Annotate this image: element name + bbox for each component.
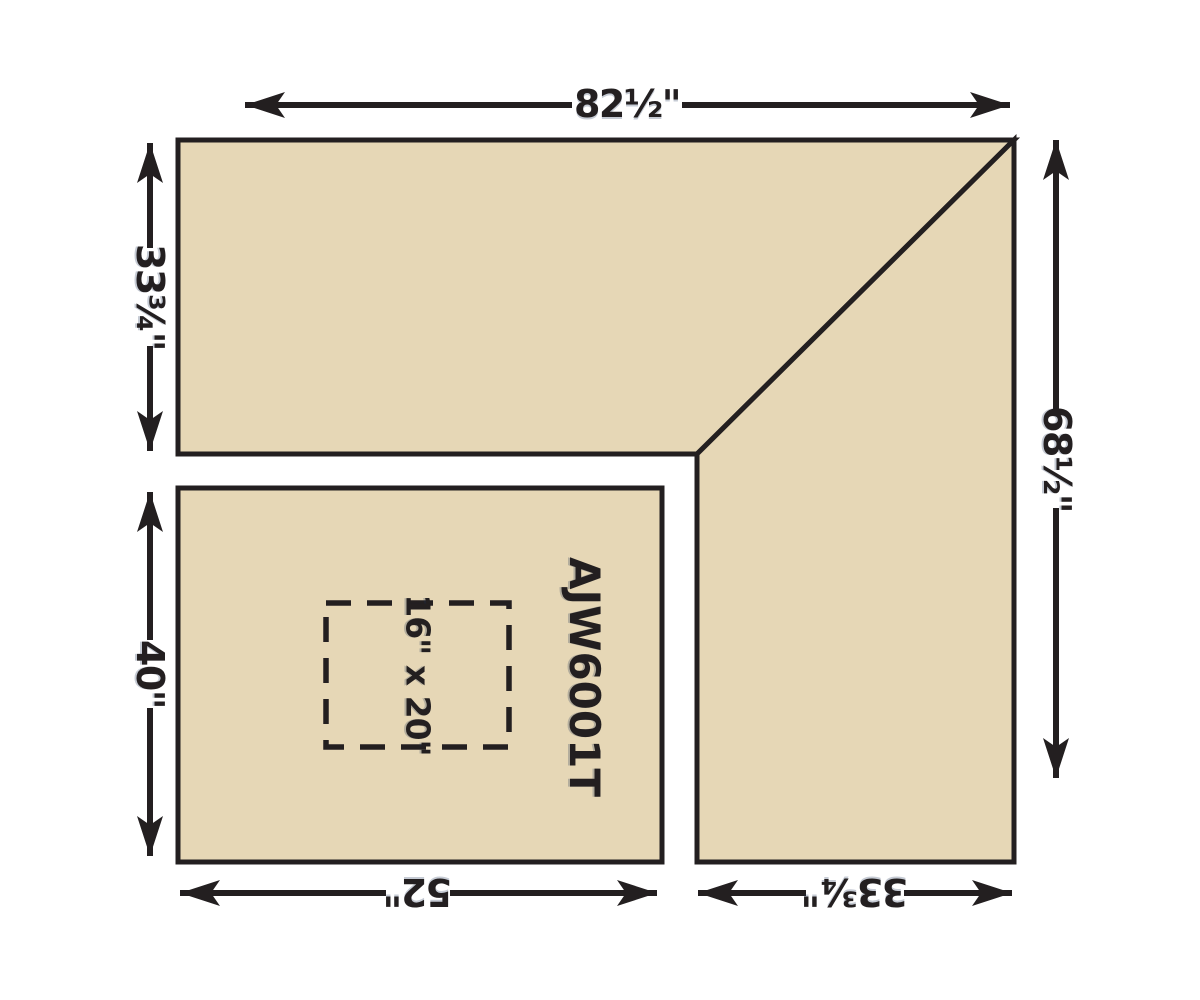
dimension-label-lower-left-height: 40" bbox=[131, 640, 169, 708]
dimension-label-top-width: 82½" bbox=[574, 85, 680, 123]
dimension-label-bottom-left-width: 52" bbox=[384, 873, 452, 911]
diagram-canvas bbox=[0, 0, 1200, 1000]
countertop-dimension-diagram: 82½" 33¾" 40" 68½" 52" 33¾" 16" x 20" AJ… bbox=[0, 0, 1200, 1000]
model-number-label: AJW6001T bbox=[563, 557, 605, 797]
dimension-label-right-height: 68½" bbox=[1038, 406, 1076, 512]
dimension-label-bottom-right-width: 33¾" bbox=[802, 873, 908, 911]
sink-cutout-size-label: 16" x 20" bbox=[402, 594, 435, 756]
dimension-label-upper-left-height: 33¾" bbox=[131, 244, 169, 350]
